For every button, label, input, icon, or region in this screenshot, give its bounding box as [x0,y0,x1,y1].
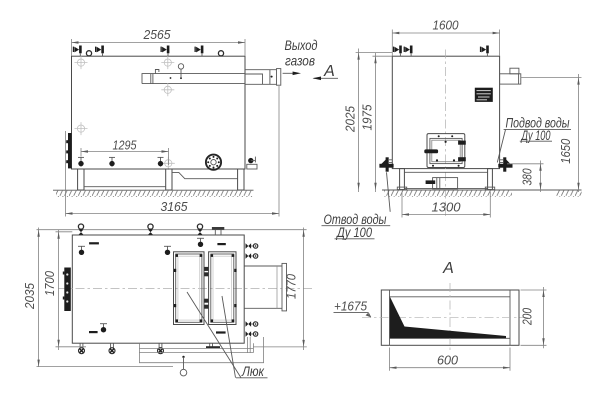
svg-text:А: А [442,260,454,277]
svg-text:1975: 1975 [360,104,374,131]
svg-text:2565: 2565 [143,28,172,42]
svg-text:1700: 1700 [43,271,57,296]
svg-text:Люк: Люк [241,363,265,379]
svg-text:2025: 2025 [344,105,358,133]
svg-text:+1675: +1675 [334,299,368,313]
svg-text:1600: 1600 [433,18,459,32]
svg-text:А: А [323,63,335,80]
svg-text:200: 200 [521,308,535,326]
svg-text:газов: газов [285,53,315,69]
svg-text:1295: 1295 [113,139,138,153]
svg-text:2035: 2035 [23,282,37,310]
svg-text:600: 600 [437,353,458,367]
svg-text:1770: 1770 [285,274,299,299]
svg-text:Выход: Выход [285,37,318,53]
svg-text:3165: 3165 [161,200,189,214]
svg-text:1650: 1650 [559,139,573,164]
svg-text:380: 380 [521,169,535,186]
svg-text:1300: 1300 [432,201,461,215]
svg-text:Ду 100: Ду 100 [335,224,372,240]
